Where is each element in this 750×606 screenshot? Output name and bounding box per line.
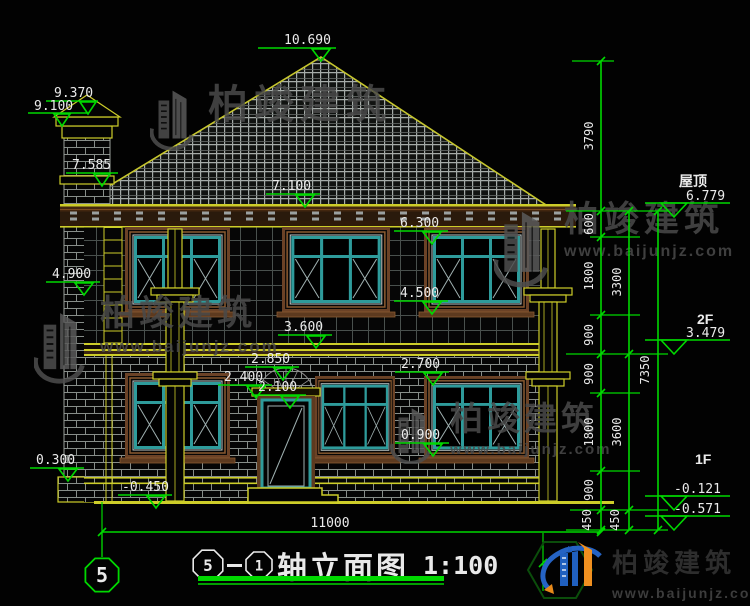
dim-eave: 7.100 bbox=[266, 179, 320, 207]
dim-peak: 10.690 bbox=[258, 33, 336, 61]
level-1f-value: -0.121 bbox=[674, 482, 721, 497]
dim-floor2-label: 3.600 bbox=[284, 320, 323, 335]
level-roof-label: 屋顶 bbox=[679, 173, 707, 189]
chain-450b: 450 bbox=[608, 509, 622, 531]
axis-from-label: 5 bbox=[203, 556, 213, 575]
dim-win2-sill: 4.500 bbox=[394, 286, 448, 314]
dim-win1-sill-label: 0.900 bbox=[401, 428, 440, 443]
title-underline bbox=[198, 576, 444, 581]
level-roof-value: 6.779 bbox=[686, 189, 725, 204]
dim-total-width-label: 11000 bbox=[310, 516, 349, 531]
dim-ground-label: -0.450 bbox=[122, 480, 169, 495]
logo-brand: 柏竣建筑 bbox=[612, 543, 750, 580]
dim-door-top: 2.100 bbox=[252, 380, 306, 408]
dim-floor2: 3.600 bbox=[278, 320, 332, 348]
chain-600: 600 bbox=[582, 213, 596, 235]
dim-capital-label: 4.900 bbox=[52, 267, 91, 282]
dim-win2-top-label: 6.300 bbox=[400, 216, 439, 231]
chain-3790: 3790 bbox=[582, 122, 596, 151]
dim-arch-top-label: 2.850 bbox=[251, 352, 290, 367]
dim-win1-top-label: 2.700 bbox=[401, 357, 440, 372]
dim-plinth: 0.300 bbox=[30, 453, 84, 481]
chain-450a: 450 bbox=[580, 509, 594, 531]
title-dash bbox=[227, 564, 242, 567]
level-1f-label: 1F bbox=[695, 451, 712, 467]
logo-leader-line bbox=[539, 533, 547, 591]
chain-1800b: 1800 bbox=[582, 418, 596, 447]
level-ground-value: -0.571 bbox=[674, 502, 721, 517]
axis-bubble-label: 5 bbox=[96, 563, 108, 587]
dim-capital: 4.900 bbox=[46, 267, 100, 295]
cad-elevation-drawing: 柏竣建筑 柏竣建筑 www.baijunjz.com 柏竣建筑 www.baij… bbox=[0, 0, 750, 606]
dim-win2-sill-label: 4.500 bbox=[400, 286, 439, 301]
title-underline-thin bbox=[198, 583, 444, 585]
axis-to-bubble: 1 bbox=[245, 551, 273, 579]
dim-chimney-cap-label: 9.100 bbox=[34, 99, 73, 114]
dim-win1-sill: 0.900 bbox=[395, 428, 449, 456]
level-2f-value: 3.479 bbox=[686, 326, 725, 341]
chain-7350: 7350 bbox=[638, 356, 652, 385]
dim-chimney-band-label: 7.585 bbox=[72, 158, 111, 173]
dim-ground: -0.450 bbox=[118, 480, 172, 508]
dim-eave-label: 7.100 bbox=[272, 179, 311, 194]
dim-peak-label: 10.690 bbox=[284, 33, 331, 48]
chain-1800a: 1800 bbox=[582, 262, 596, 291]
axis-bubble: 5 bbox=[85, 532, 118, 592]
axis-to-label: 1 bbox=[255, 559, 263, 575]
chain-3300: 3300 bbox=[610, 268, 624, 297]
chain-900b: 900 bbox=[582, 363, 596, 385]
dim-chimney-band: 7.585 bbox=[66, 158, 118, 186]
dim-door-top-label: 2.100 bbox=[258, 380, 297, 395]
chain-900a: 900 bbox=[582, 324, 596, 346]
level-2f-label: 2F bbox=[697, 311, 714, 327]
dimension-layer: 10.690 9.370 9.100 7.585 7.100 6.300 4.9… bbox=[0, 0, 750, 606]
logo-site: www.baijunjz.com bbox=[612, 585, 750, 601]
dim-chimney-cap: 9.100 bbox=[28, 99, 88, 126]
brand-logo-text: 柏竣建筑 www.baijunjz.com bbox=[612, 543, 750, 601]
dim-plinth-label: 0.300 bbox=[36, 453, 75, 468]
chain-900c: 900 bbox=[582, 479, 596, 501]
dimension-chain: 3790 600 1800 900 900 1800 900 450 3300 … bbox=[566, 57, 668, 534]
chain-3600: 3600 bbox=[610, 418, 624, 447]
dim-win1-top: 2.700 bbox=[395, 357, 449, 385]
dim-win2-top: 6.300 bbox=[394, 216, 448, 244]
